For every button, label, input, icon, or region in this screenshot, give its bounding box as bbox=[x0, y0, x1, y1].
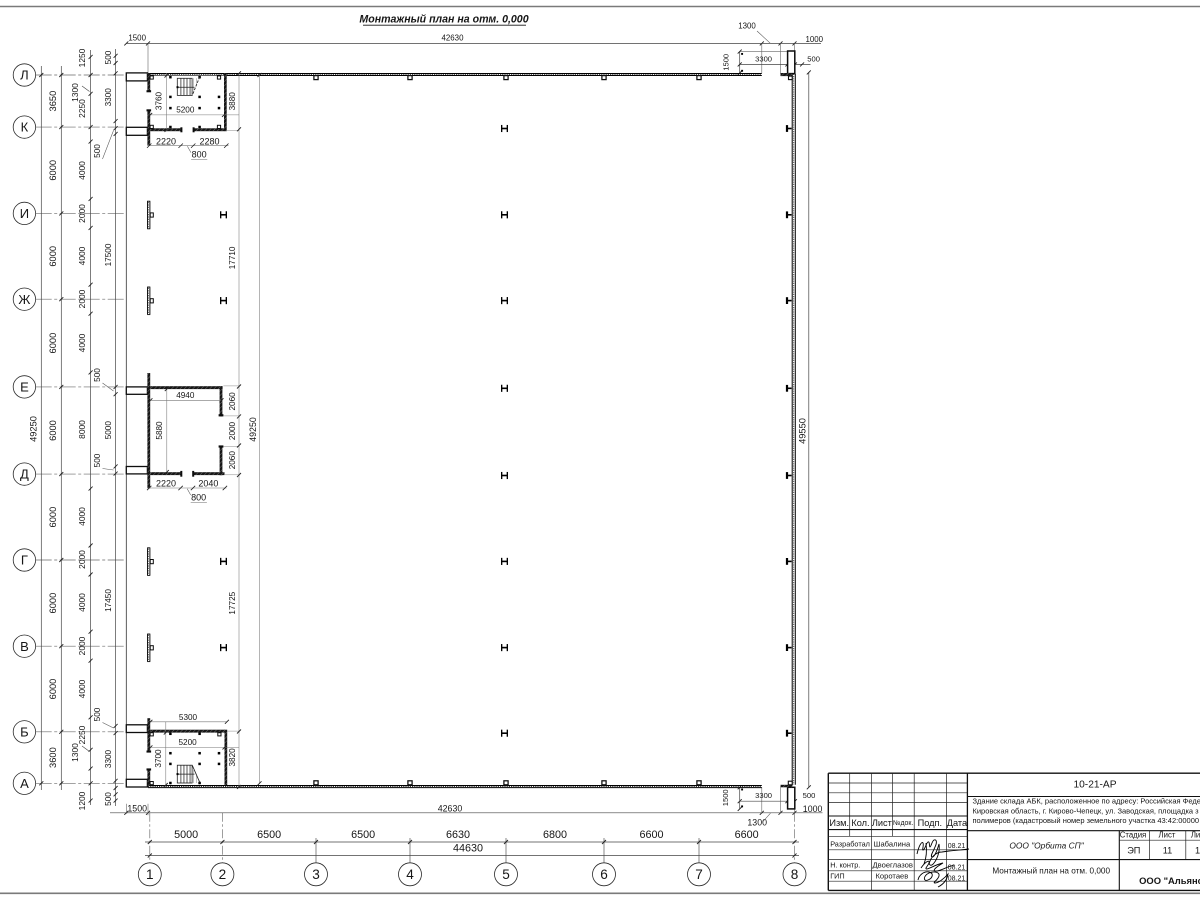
svg-text:3650: 3650 bbox=[48, 91, 58, 112]
svg-text:1300: 1300 bbox=[738, 21, 756, 30]
svg-text:Кол.: Кол. bbox=[851, 818, 869, 828]
svg-text:42630: 42630 bbox=[438, 803, 463, 813]
svg-text:Лист: Лист bbox=[1159, 831, 1176, 840]
svg-text:3820: 3820 bbox=[228, 748, 237, 767]
svg-text:4000: 4000 bbox=[77, 593, 87, 612]
svg-text:3600: 3600 bbox=[48, 747, 58, 768]
svg-text:А: А bbox=[20, 776, 29, 791]
svg-text:500: 500 bbox=[104, 50, 113, 64]
svg-text:6000: 6000 bbox=[48, 679, 58, 700]
svg-text:2040: 2040 bbox=[198, 479, 218, 489]
svg-text:Б: Б bbox=[20, 724, 29, 739]
svg-text:3300: 3300 bbox=[104, 749, 113, 768]
svg-text:4000: 4000 bbox=[77, 679, 87, 698]
svg-text:Коротаев: Коротаев bbox=[876, 871, 909, 880]
svg-text:500: 500 bbox=[104, 792, 113, 806]
svg-text:ООО "Орбита СП": ООО "Орбита СП" bbox=[1009, 841, 1084, 851]
svg-text:Изм.: Изм. bbox=[829, 818, 849, 828]
svg-text:2000: 2000 bbox=[77, 204, 87, 223]
svg-text:2060: 2060 bbox=[228, 451, 237, 470]
svg-text:800: 800 bbox=[192, 149, 207, 159]
svg-text:7: 7 bbox=[695, 867, 703, 882]
svg-text:6000: 6000 bbox=[48, 593, 58, 614]
svg-text:5200: 5200 bbox=[178, 738, 197, 747]
svg-text:3880: 3880 bbox=[228, 92, 237, 111]
svg-text:42630: 42630 bbox=[442, 33, 465, 42]
svg-text:2000: 2000 bbox=[77, 289, 87, 308]
svg-text:4940: 4940 bbox=[176, 391, 195, 400]
svg-text:Монтажный план на отм. 0,000: Монтажный план на отм. 0,000 bbox=[992, 867, 1110, 876]
svg-text:2220: 2220 bbox=[156, 136, 176, 146]
svg-text:2: 2 bbox=[219, 867, 227, 882]
svg-text:Д: Д bbox=[20, 467, 29, 482]
svg-text:6000: 6000 bbox=[48, 507, 58, 528]
svg-text:5300: 5300 bbox=[179, 713, 198, 722]
svg-text:1300: 1300 bbox=[747, 817, 767, 827]
svg-text:Дата: Дата bbox=[947, 818, 968, 828]
svg-text:4: 4 bbox=[406, 867, 414, 882]
svg-text:Н. контр.: Н. контр. bbox=[830, 860, 860, 869]
svg-text:500: 500 bbox=[93, 453, 102, 467]
svg-text:Кировская область, г. Кирово-Ч: Кировская область, г. Кирово-Чепецк, ул.… bbox=[973, 806, 1200, 815]
svg-text:08.21: 08.21 bbox=[948, 876, 966, 883]
svg-text:6000: 6000 bbox=[48, 333, 58, 354]
svg-text:В: В bbox=[20, 639, 29, 654]
svg-text:49550: 49550 bbox=[797, 418, 807, 444]
svg-text:Лист: Лист bbox=[872, 818, 893, 828]
svg-text:2000: 2000 bbox=[77, 636, 87, 655]
svg-text:5000: 5000 bbox=[104, 421, 113, 440]
svg-text:6600: 6600 bbox=[639, 829, 663, 841]
svg-text:500: 500 bbox=[93, 144, 102, 158]
svg-text:17710: 17710 bbox=[228, 246, 237, 269]
svg-text:Стадия: Стадия bbox=[1120, 831, 1147, 840]
svg-text:6800: 6800 bbox=[543, 829, 567, 841]
svg-text:49250: 49250 bbox=[29, 416, 39, 442]
svg-text:800: 800 bbox=[191, 492, 206, 502]
svg-text:6630: 6630 bbox=[446, 829, 470, 841]
svg-text:5200: 5200 bbox=[176, 105, 195, 114]
svg-text:Шабалина: Шабалина bbox=[874, 839, 911, 848]
svg-text:ГИП: ГИП bbox=[830, 871, 844, 880]
svg-text:6000: 6000 bbox=[48, 246, 58, 267]
svg-text:8: 8 bbox=[791, 867, 799, 882]
svg-text:1250: 1250 bbox=[77, 48, 87, 67]
svg-text:Подп.: Подп. bbox=[918, 818, 942, 828]
svg-text:Монтажный план на отм. 0,000: Монтажный план на отм. 0,000 bbox=[359, 13, 528, 25]
svg-text:2060: 2060 bbox=[228, 392, 237, 411]
svg-text:1: 1 bbox=[1195, 845, 1200, 855]
svg-text:500: 500 bbox=[93, 368, 102, 382]
svg-text:500: 500 bbox=[807, 55, 820, 64]
svg-text:ООО "Альянс: ООО "Альянс bbox=[1139, 875, 1200, 886]
svg-text:1: 1 bbox=[146, 867, 154, 882]
svg-text:6: 6 bbox=[600, 867, 608, 882]
svg-text:1500: 1500 bbox=[721, 789, 730, 806]
svg-text:3700: 3700 bbox=[154, 749, 163, 768]
svg-text:Двоеглазов: Двоеглазов bbox=[873, 860, 913, 869]
svg-text:500: 500 bbox=[803, 791, 816, 800]
svg-text:4000: 4000 bbox=[77, 333, 87, 352]
svg-text:17500: 17500 bbox=[104, 243, 113, 266]
svg-text:2000: 2000 bbox=[228, 421, 237, 440]
svg-text:И: И bbox=[20, 206, 29, 221]
svg-text:4000: 4000 bbox=[77, 507, 87, 526]
svg-text:1200: 1200 bbox=[77, 791, 87, 810]
svg-text:Е: Е bbox=[20, 380, 29, 395]
svg-text:ЭП: ЭП bbox=[1127, 845, 1140, 855]
svg-text:1500: 1500 bbox=[128, 33, 146, 42]
svg-text:08.21: 08.21 bbox=[948, 865, 966, 872]
svg-text:6600: 6600 bbox=[735, 829, 759, 841]
svg-text:Л: Л bbox=[20, 68, 29, 83]
svg-text:11: 11 bbox=[1163, 845, 1173, 855]
svg-text:6000: 6000 bbox=[48, 160, 58, 181]
svg-text:5: 5 bbox=[502, 867, 510, 882]
svg-text:10-21-АР: 10-21-АР bbox=[1073, 780, 1116, 791]
svg-text:2000: 2000 bbox=[77, 550, 87, 569]
svg-text:1000: 1000 bbox=[803, 804, 823, 814]
svg-text:Ж: Ж bbox=[18, 292, 30, 307]
svg-text:Здание склада АБК, расположенн: Здание склада АБК, расположенное по адре… bbox=[973, 797, 1200, 806]
svg-text:3760: 3760 bbox=[155, 91, 164, 110]
svg-text:6500: 6500 bbox=[257, 829, 281, 841]
svg-text:3: 3 bbox=[312, 867, 320, 882]
svg-text:3300: 3300 bbox=[755, 791, 772, 800]
svg-text:6500: 6500 bbox=[351, 829, 375, 841]
svg-text:2220: 2220 bbox=[156, 479, 176, 489]
svg-text:3300: 3300 bbox=[104, 88, 113, 107]
svg-text:1000: 1000 bbox=[806, 35, 824, 44]
svg-text:2250: 2250 bbox=[77, 725, 87, 744]
svg-text:№док.: №док. bbox=[893, 820, 914, 827]
svg-text:500: 500 bbox=[93, 707, 102, 721]
svg-text:8000: 8000 bbox=[77, 420, 87, 439]
svg-text:К: К bbox=[21, 120, 29, 135]
svg-text:Г: Г bbox=[21, 553, 28, 568]
svg-text:1500: 1500 bbox=[721, 54, 730, 71]
svg-text:5880: 5880 bbox=[155, 421, 164, 440]
svg-text:4000: 4000 bbox=[77, 161, 87, 180]
svg-text:08.21: 08.21 bbox=[948, 843, 966, 850]
svg-text:4000: 4000 bbox=[77, 246, 87, 265]
svg-text:44630: 44630 bbox=[453, 842, 483, 854]
svg-text:3300: 3300 bbox=[755, 55, 772, 64]
svg-text:полимеров (кадастровый номер з: полимеров (кадастровый номер земельного … bbox=[973, 816, 1200, 825]
svg-text:17450: 17450 bbox=[104, 589, 113, 612]
svg-text:1300: 1300 bbox=[70, 743, 80, 762]
svg-text:6000: 6000 bbox=[48, 420, 58, 441]
svg-text:Лис: Лис bbox=[1191, 831, 1200, 840]
svg-text:Разработал: Разработал bbox=[830, 839, 870, 848]
svg-text:17725: 17725 bbox=[228, 591, 237, 614]
svg-text:1300: 1300 bbox=[70, 83, 80, 102]
svg-text:1500: 1500 bbox=[127, 803, 147, 813]
svg-text:2280: 2280 bbox=[199, 136, 219, 146]
svg-text:5000: 5000 bbox=[174, 829, 198, 841]
svg-text:49250: 49250 bbox=[248, 417, 258, 442]
